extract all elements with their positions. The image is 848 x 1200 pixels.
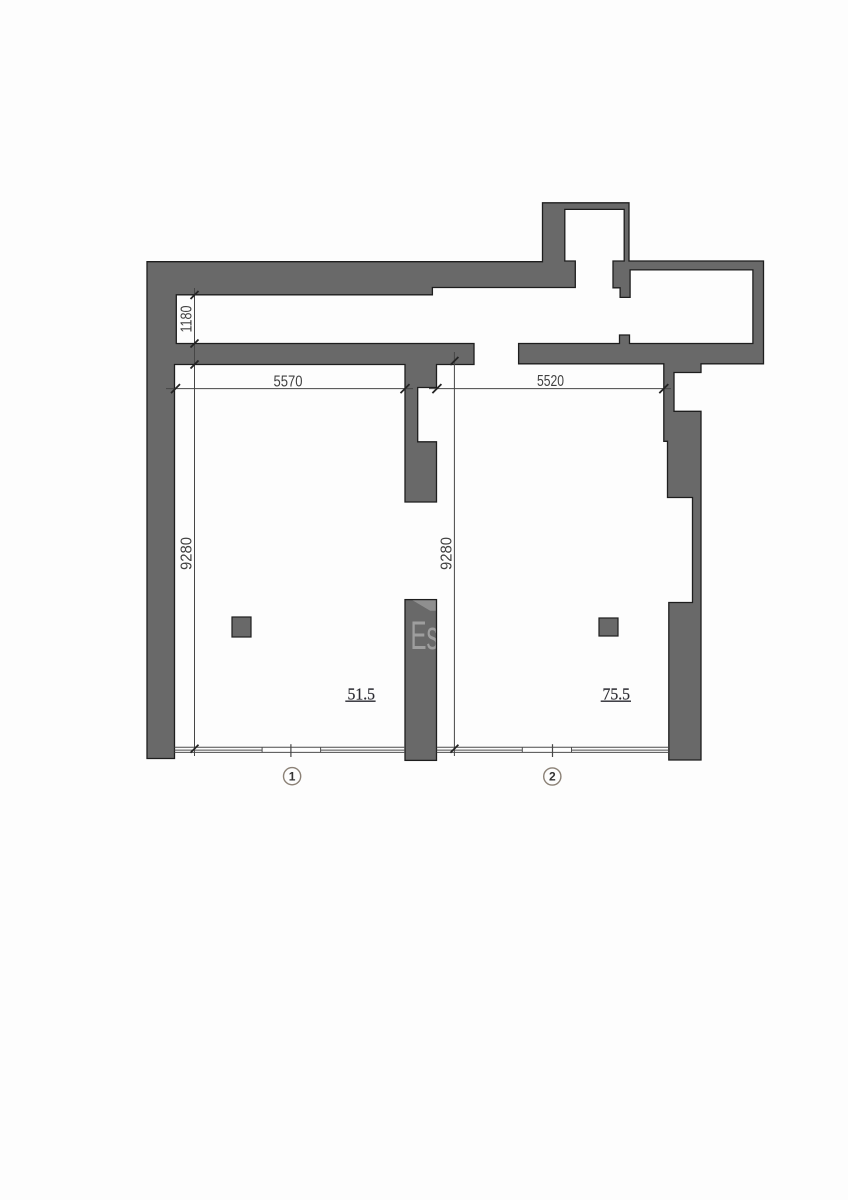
svg-text:9280: 9280 [439, 537, 456, 570]
svg-text:9280: 9280 [179, 537, 196, 570]
svg-text:1180: 1180 [179, 305, 196, 332]
svg-text:2: 2 [549, 770, 556, 784]
svg-text:1: 1 [289, 769, 296, 783]
svg-text:5520: 5520 [537, 373, 564, 390]
svg-text:Es: Es [411, 614, 439, 658]
svg-text:5570: 5570 [274, 373, 303, 390]
